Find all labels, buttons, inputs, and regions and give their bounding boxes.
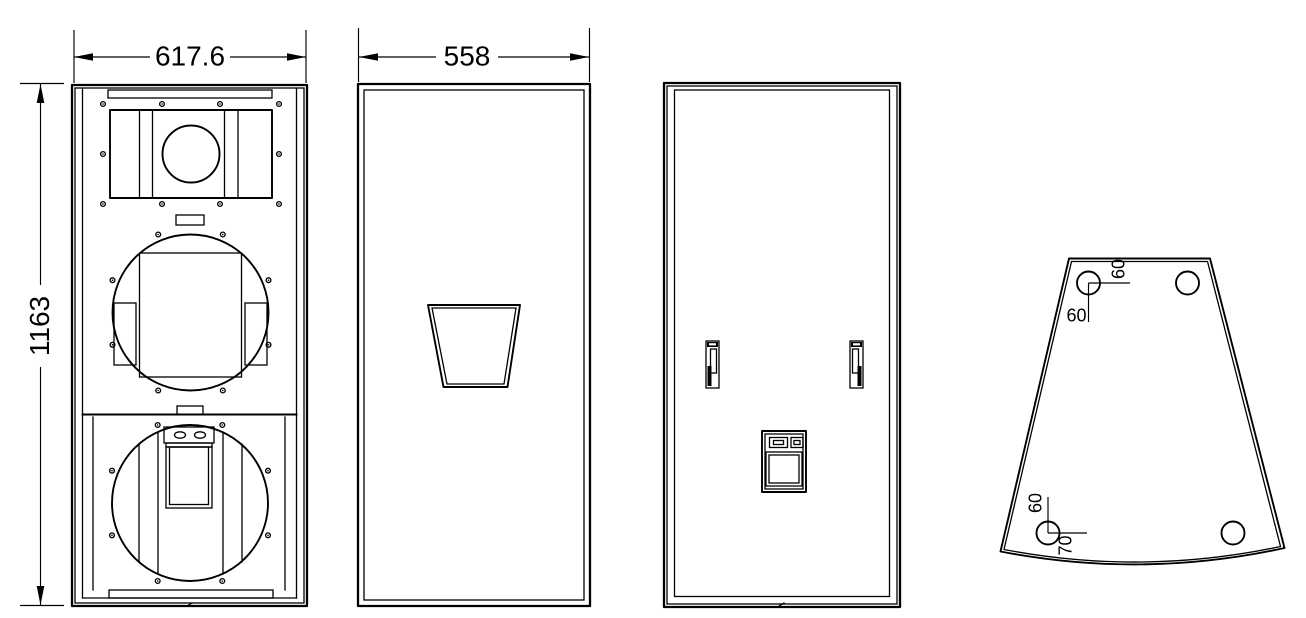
screw-hole: [101, 202, 106, 207]
terminal-hole: [195, 432, 206, 438]
arrowhead-left: [359, 53, 378, 61]
front-view: [72, 85, 307, 606]
plan-bottom-offset-x-label: 70: [1056, 535, 1076, 555]
screw-hole: [266, 533, 271, 538]
dimension-front-width: 617.6: [74, 30, 306, 83]
plan-hole-top-right: [1176, 272, 1199, 295]
divider-slot: [177, 406, 203, 415]
upper-woofer: [110, 232, 271, 393]
woofer-cutout-circle: [112, 425, 268, 581]
screw-hole: [220, 423, 225, 428]
drawing-canvas: 617.6 1163 558: [0, 0, 1306, 618]
screw-hole: [220, 579, 225, 584]
screw-hole: [110, 533, 115, 538]
screw-hole: [156, 388, 161, 393]
terminal-hole: [175, 432, 186, 438]
arrowhead-down: [37, 586, 45, 605]
screw-hole: [277, 102, 282, 107]
screw-hole: [160, 202, 165, 207]
terminal-box: [164, 427, 214, 443]
plan-top-offset-y-label: 60: [1066, 306, 1086, 326]
handle-slot-shadow: [858, 366, 862, 386]
screw-hole: [101, 152, 106, 157]
screw-hole: [277, 202, 282, 207]
screw-hole: [110, 278, 115, 283]
screw-hole: [160, 102, 165, 107]
screw-hole: [155, 423, 160, 428]
screw-hole: [218, 202, 223, 207]
screw-hole: [218, 102, 223, 107]
plan-view: 60 60 60 70: [1001, 259, 1285, 565]
side-handle-trapezoid-inner: [432, 308, 516, 384]
bottom-vent-slot: [109, 590, 273, 598]
connector-cup-inner: [769, 455, 799, 483]
screw-hole: [266, 278, 271, 283]
connector-label-right-inner: [794, 441, 800, 445]
handle-slot-shadow: [708, 366, 712, 386]
back-handle-left: [706, 341, 719, 388]
connector-label-right: [791, 438, 803, 448]
front-width-label: 617.6: [155, 41, 225, 72]
plan-hole-bottom-right: [1222, 522, 1245, 545]
port-tube-outer: [166, 447, 212, 508]
dimension-side-width: 558: [359, 28, 590, 82]
handle-cap-groove: [853, 343, 860, 345]
side-width-label: 558: [444, 41, 491, 72]
technical-drawing: 617.6 1163 558: [0, 0, 1306, 618]
connector-label-left: [770, 438, 788, 448]
screw-hole: [155, 579, 160, 584]
arrowhead-left: [74, 53, 93, 61]
plan-outline-inner: [1004, 262, 1281, 563]
connector-label-left-inner: [774, 441, 784, 445]
side-handle-trapezoid-outer: [428, 305, 520, 387]
plan-dim-top-hole: 60 60: [1066, 259, 1130, 326]
screw-hole: [277, 152, 282, 157]
back-view: [664, 83, 900, 607]
side-cabinet-inner-edge: [364, 90, 584, 600]
side-cabinet-outline: [358, 84, 590, 606]
screw-hole: [110, 468, 115, 473]
connector-dish: [762, 431, 806, 492]
screw-hole: [266, 468, 271, 473]
arrowhead-right: [287, 53, 306, 61]
lower-woofer-section: [93, 417, 285, 598]
horn-assembly: [101, 102, 282, 207]
connector-cup-outer: [766, 452, 802, 486]
woofer-frame-rect: [140, 253, 242, 377]
screw-hole: [220, 232, 225, 237]
mid-slot: [176, 215, 204, 225]
port-tube-inner: [170, 447, 209, 505]
side-view: [358, 84, 590, 606]
arrowhead-right: [570, 53, 589, 61]
back-cabinet-outline: [664, 83, 900, 607]
plan-bottom-offset-y-label: 60: [1026, 493, 1046, 513]
screw-hole: [101, 102, 106, 107]
dimension-front-height: 1163: [20, 84, 64, 606]
port-assembly: [164, 427, 214, 508]
plan-top-offset-x-label: 60: [1109, 259, 1129, 279]
horn-throat-circle: [163, 126, 220, 183]
screw-hole: [156, 232, 161, 237]
arrowhead-up: [37, 84, 45, 103]
screw-hole: [220, 388, 225, 393]
back-handle-right: [850, 341, 863, 388]
plan-outline-outer: [1001, 259, 1285, 565]
handle-cap-groove: [709, 343, 716, 345]
horn-outline: [110, 110, 272, 198]
front-height-label: 1163: [24, 296, 55, 356]
top-recess-slot: [108, 90, 272, 98]
